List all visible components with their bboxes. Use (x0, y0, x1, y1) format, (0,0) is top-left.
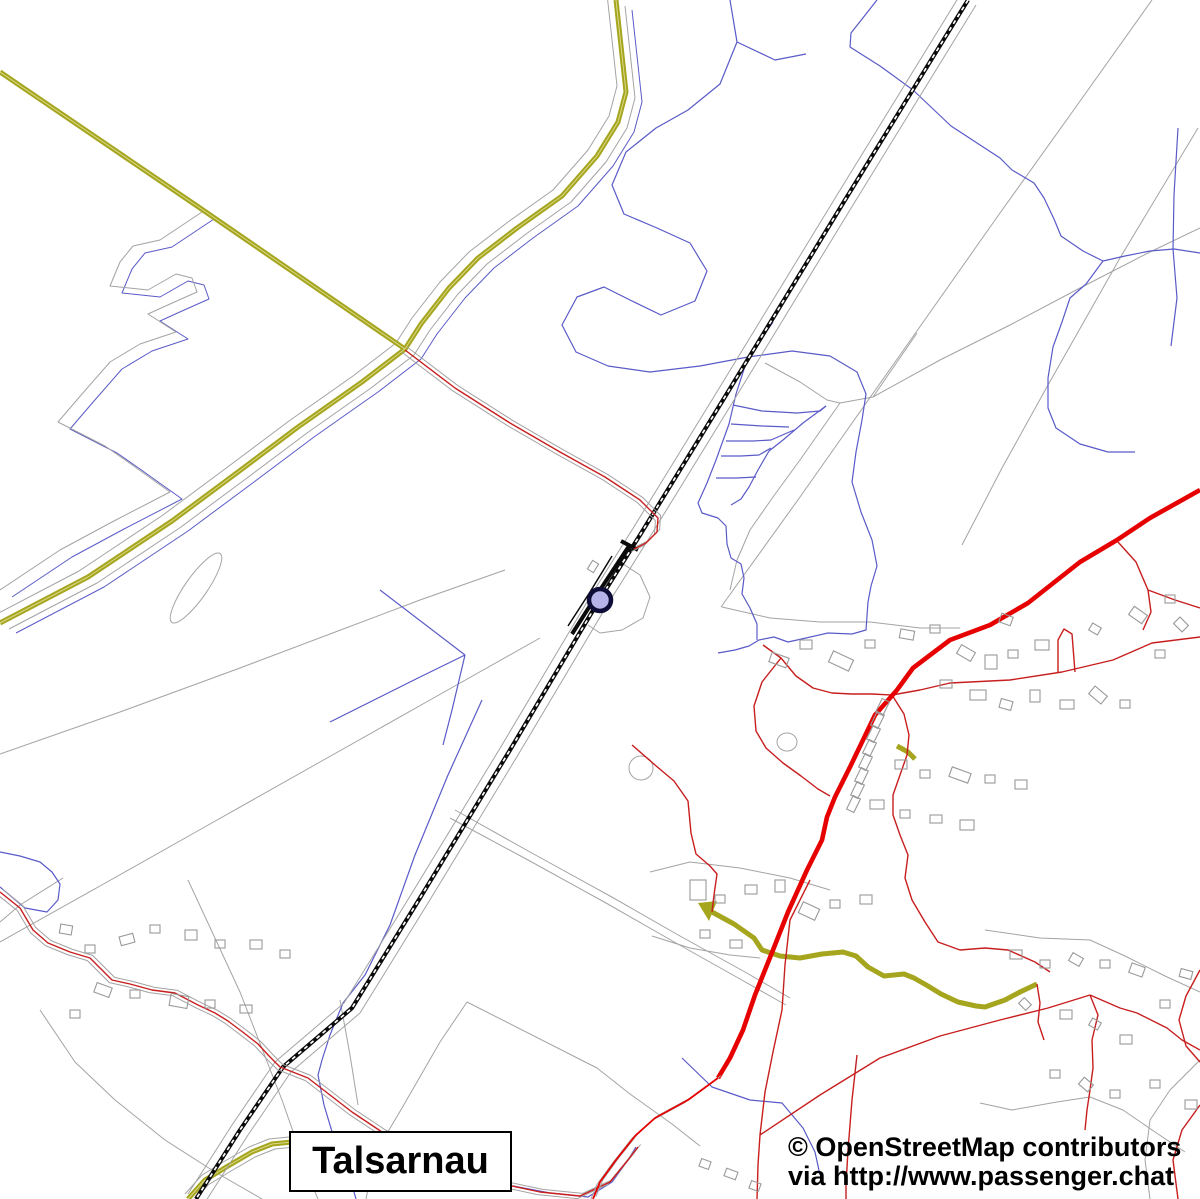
layer-railway-dashes (196, 0, 968, 1199)
building-outline (724, 1168, 738, 1180)
building-outline (1030, 690, 1040, 702)
building-outline (1160, 1000, 1170, 1008)
building-outline (587, 560, 598, 572)
place-label-talsarnau: Talsarnau (289, 1131, 512, 1192)
layer-main-road (718, 490, 1200, 1078)
building-outline (1120, 700, 1130, 708)
building-outline (847, 796, 861, 813)
building-outline (59, 924, 72, 935)
building-outline (1050, 1070, 1060, 1078)
map-canvas[interactable] (0, 0, 1200, 1199)
pond-outline (777, 733, 797, 751)
building-outline (1100, 960, 1110, 968)
building-outline (1155, 650, 1165, 658)
building-outline (930, 815, 942, 823)
building-outline (749, 1181, 761, 1192)
building-outline (960, 820, 974, 830)
building-outline (999, 699, 1013, 711)
building-outline (700, 930, 710, 938)
building-outline (185, 930, 197, 940)
building-outline (130, 990, 140, 998)
building-outline (800, 640, 812, 649)
building-outline (1019, 998, 1032, 1011)
building-outline (860, 895, 872, 904)
building-outline (957, 645, 976, 662)
building-outline (949, 767, 971, 783)
attribution-line1: © OpenStreetMap contributors (788, 1133, 1181, 1162)
building-outline (1179, 969, 1193, 980)
layer-ponds (163, 547, 797, 780)
building-outline (119, 933, 135, 945)
layer-buildings (59, 560, 1197, 1191)
attribution: © OpenStreetMap contributors via http://… (788, 1133, 1181, 1191)
building-outline (970, 690, 986, 700)
building-outline (1060, 700, 1074, 709)
building-outline (1060, 1010, 1072, 1019)
building-outline (70, 1010, 80, 1018)
building-outline (1185, 1100, 1197, 1109)
building-outline (1129, 606, 1148, 623)
building-outline (1015, 780, 1027, 789)
map-viewport[interactable]: Talsarnau © OpenStreetMap contributors v… (0, 0, 1200, 1199)
building-outline (94, 983, 112, 998)
station-marker[interactable] (589, 589, 611, 611)
building-outline (830, 900, 840, 908)
building-outline (920, 770, 930, 778)
building-outline (1150, 1080, 1160, 1088)
building-outline (1069, 953, 1084, 967)
place-label-text: Talsarnau (312, 1140, 489, 1183)
building-outline (828, 651, 853, 671)
layer-footpath-embanked (0, 0, 642, 633)
building-outline (899, 629, 914, 640)
building-outline (1089, 686, 1108, 704)
building-outline (690, 880, 706, 900)
layer-footpath-winding (712, 746, 1037, 1007)
layer-footpath-centerlines (0, 0, 626, 1199)
building-outline (1008, 650, 1018, 658)
building-outline (1174, 617, 1189, 632)
layer-railway-line (196, 0, 968, 1199)
building-outline (699, 1159, 711, 1170)
building-outline (775, 880, 785, 892)
building-outline (1089, 623, 1102, 635)
attribution-line2: via http://www.passenger.chat (788, 1162, 1181, 1191)
building-outline (798, 902, 819, 920)
building-outline (745, 885, 757, 894)
building-outline (280, 950, 290, 958)
building-outline (250, 940, 262, 949)
building-outline (730, 940, 742, 948)
building-outline (150, 925, 160, 933)
building-outline (1120, 1035, 1132, 1044)
layer-cased-tracks (0, 347, 661, 1198)
building-outline (900, 810, 910, 818)
layer-marsh-edge (0, 212, 214, 597)
building-outline (1035, 640, 1049, 650)
layer-minor-roads (632, 542, 1200, 1199)
building-outline (1089, 1018, 1102, 1030)
building-outline (1110, 1090, 1120, 1098)
pond-outline (163, 547, 229, 628)
building-outline (870, 800, 884, 809)
building-outline (930, 625, 940, 633)
building-outline (865, 640, 875, 648)
building-outline (985, 655, 997, 669)
building-outline (85, 945, 95, 953)
building-outline (985, 775, 995, 783)
